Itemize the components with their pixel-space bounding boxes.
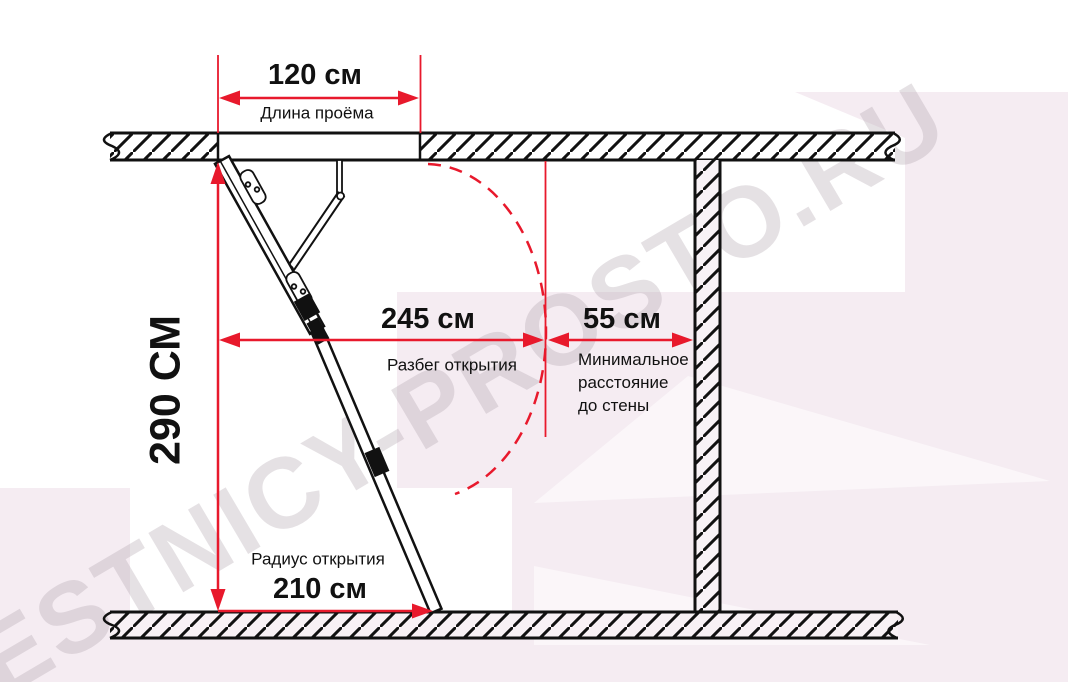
ceiling-structure xyxy=(104,133,900,160)
opening-length-caption: Длина проёма xyxy=(260,105,373,124)
attic-ladder xyxy=(215,156,442,613)
ladder-dimensions-diagram: LESTNICY-PROSTO.RU xyxy=(0,0,1068,682)
ladder-spring-arm xyxy=(284,160,345,276)
opening-radius-value: 210 см xyxy=(273,574,367,606)
room-height-value: 290 СМ xyxy=(142,315,189,465)
opening-length-value: 120 см xyxy=(268,60,362,92)
wall-clearance-caption-line2: расстояние xyxy=(578,371,689,394)
wall-clearance-caption: Минимальное расстояние до стены xyxy=(578,348,689,417)
opening-run-caption: Разбег открытия xyxy=(387,357,517,376)
opening-run-value: 245 см xyxy=(381,304,475,336)
wall-clearance-caption-line1: Минимальное xyxy=(578,348,689,371)
dimension-room-height xyxy=(211,162,226,611)
opening-radius-caption: Радиус открытия xyxy=(251,551,385,570)
wall-structure xyxy=(695,160,720,612)
wall-clearance-caption-line3: до стены xyxy=(578,394,689,417)
floor-structure xyxy=(104,612,903,638)
wall-clearance-value: 55 см xyxy=(583,304,661,336)
